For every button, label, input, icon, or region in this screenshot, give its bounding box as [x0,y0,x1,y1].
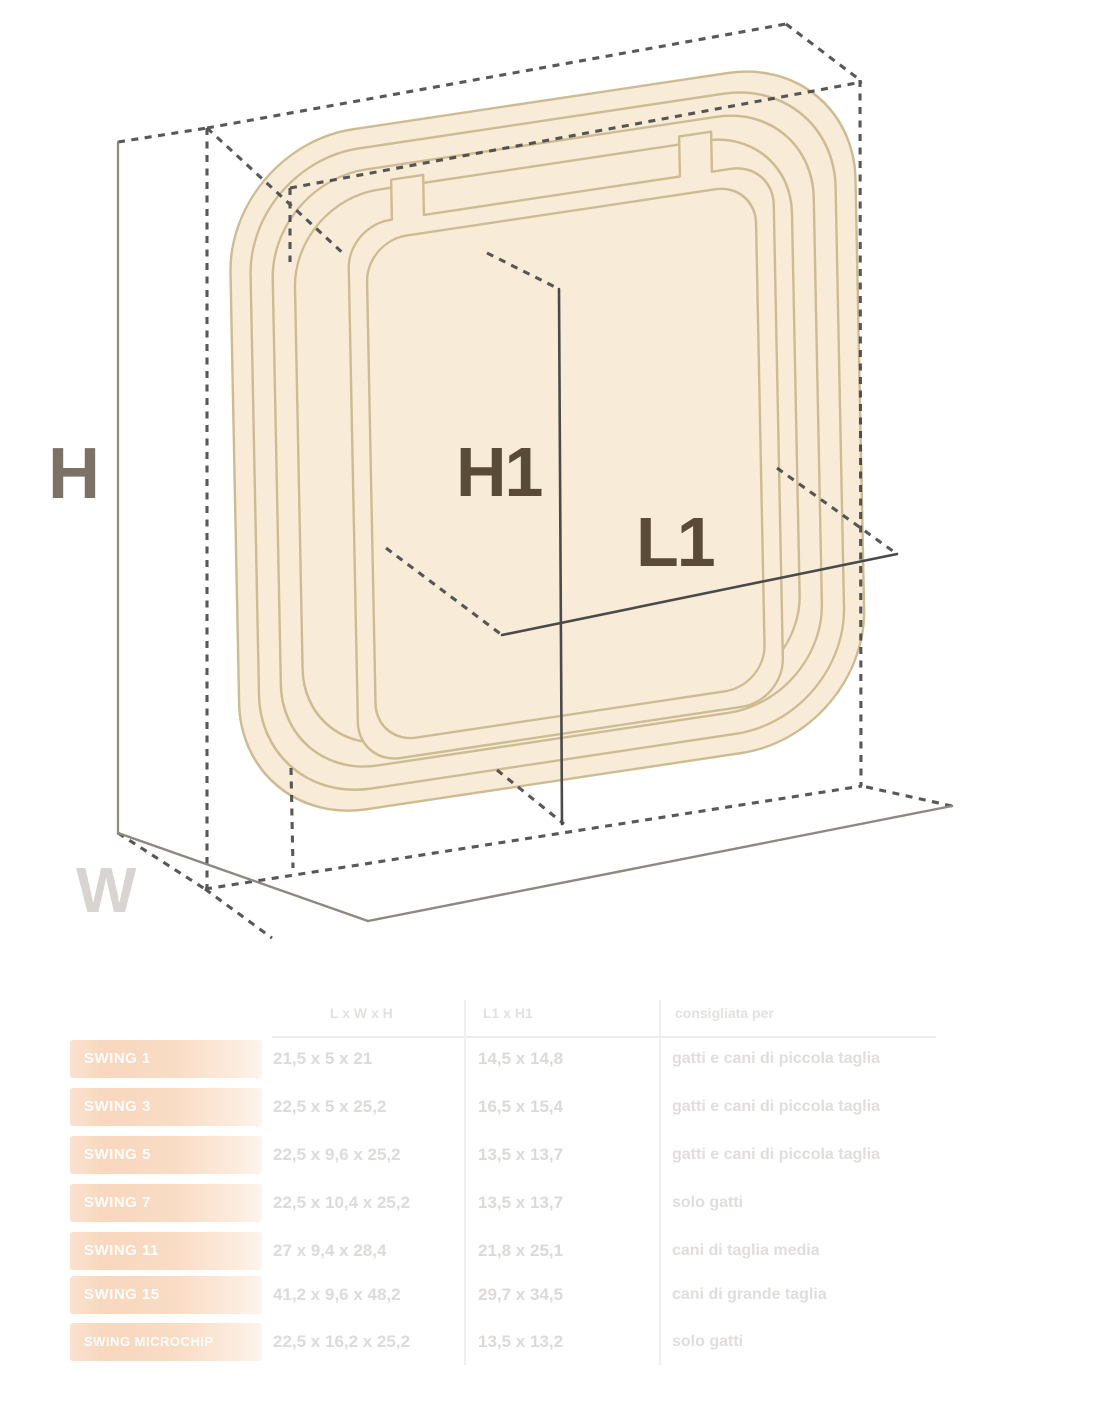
opening-cell: 29,7 x 34,5 [478,1276,563,1314]
table-row: SWING 15 41,2 x 9,6 x 48,2 29,7 x 34,5 c… [0,1276,1100,1314]
model-band [70,1088,262,1126]
box-bottom-right-connector [862,786,952,806]
opening-column-header: L1 x H1 [483,1005,533,1021]
model-band [70,1184,262,1222]
height-label: H [48,434,98,514]
dimensions-column-header: L x W x H [330,1005,393,1021]
box-top-right-edge [786,24,860,80]
column-separator [659,1000,661,1365]
table-row: SWING 7 22,5 x 10,4 x 25,2 13,5 x 13,7 s… [0,1184,1100,1222]
box-front-vertical-bottom [291,768,293,868]
length-baseline [368,806,952,921]
model-band [70,1323,262,1361]
table-row: SWING 1 21,5 x 5 x 21 14,5 x 14,8 gatti … [0,1040,1100,1078]
opening-cell: 13,5 x 13,7 [478,1184,563,1222]
dimensions-cell: 22,5 x 10,4 x 25,2 [273,1184,410,1222]
pet-door-dimensions-page: H H1 L1 W L x W x H L1 x H1 consigliata … [0,0,1100,1422]
box-top-left-edge [118,128,207,142]
door-illustration [228,54,867,828]
dimensions-cell: 21,5 x 5 x 21 [273,1040,372,1078]
recommended-column-header: consigliata per [675,1005,774,1021]
model-cell: SWING 3 [84,1088,151,1126]
opening-cell: 21,8 x 25,1 [478,1232,563,1270]
recommended-cell: gatti e cani di piccola taglia [672,1136,880,1174]
opening-cell: 13,5 x 13,7 [478,1136,563,1174]
dimension-diagram: H H1 L1 W [0,0,1100,965]
dimensions-cell: 22,5 x 16,2 x 25,2 [273,1323,410,1361]
model-cell: SWING 1 [84,1040,151,1078]
model-cell: SWING 15 [84,1276,160,1314]
model-band [70,1232,262,1270]
opening-cell: 14,5 x 14,8 [478,1040,563,1078]
dimensions-cell: 22,5 x 5 x 25,2 [273,1088,386,1126]
model-band [70,1040,262,1078]
recommended-cell: cani di grande taglia [672,1276,827,1314]
model-cell: SWING 11 [84,1232,159,1270]
recommended-cell: gatti e cani di piccola taglia [672,1088,880,1126]
header-underline [272,1036,936,1038]
table-row: SWING 11 27 x 9,4 x 28,4 21,8 x 25,1 can… [0,1232,1100,1270]
column-separator [464,1000,466,1365]
dimensions-cell: 22,5 x 9,6 x 25,2 [273,1136,401,1174]
table-row: SWING MICROCHIP 22,5 x 16,2 x 25,2 13,5 … [0,1323,1100,1361]
table-row: SWING 3 22,5 x 5 x 25,2 16,5 x 15,4 gatt… [0,1088,1100,1126]
model-cell: SWING 7 [84,1184,151,1222]
inner-length-label: L1 [636,503,714,581]
model-cell: SWING MICROCHIP [84,1323,214,1361]
inner-height-label: H1 [456,433,542,511]
recommended-cell: cani di taglia media [672,1232,820,1270]
width-label: W [76,854,137,926]
model-band [70,1136,262,1174]
recommended-cell: solo gatti [672,1323,743,1361]
model-cell: SWING 5 [84,1136,151,1174]
dimensions-cell: 41,2 x 9,6 x 48,2 [273,1276,401,1314]
opening-cell: 13,5 x 13,2 [478,1323,563,1361]
recommended-cell: gatti e cani di piccola taglia [672,1040,880,1078]
table-row: SWING 5 22,5 x 9,6 x 25,2 13,5 x 13,7 ga… [0,1136,1100,1174]
width-dimension-line [118,833,368,921]
dimensions-cell: 27 x 9,4 x 28,4 [273,1232,386,1270]
box-bottom-thickness-edge [205,889,272,938]
flap-door [366,183,765,743]
model-band [70,1276,262,1314]
opening-cell: 16,5 x 15,4 [478,1088,563,1126]
box-right-vertical [860,80,861,786]
recommended-cell: solo gatti [672,1184,743,1222]
